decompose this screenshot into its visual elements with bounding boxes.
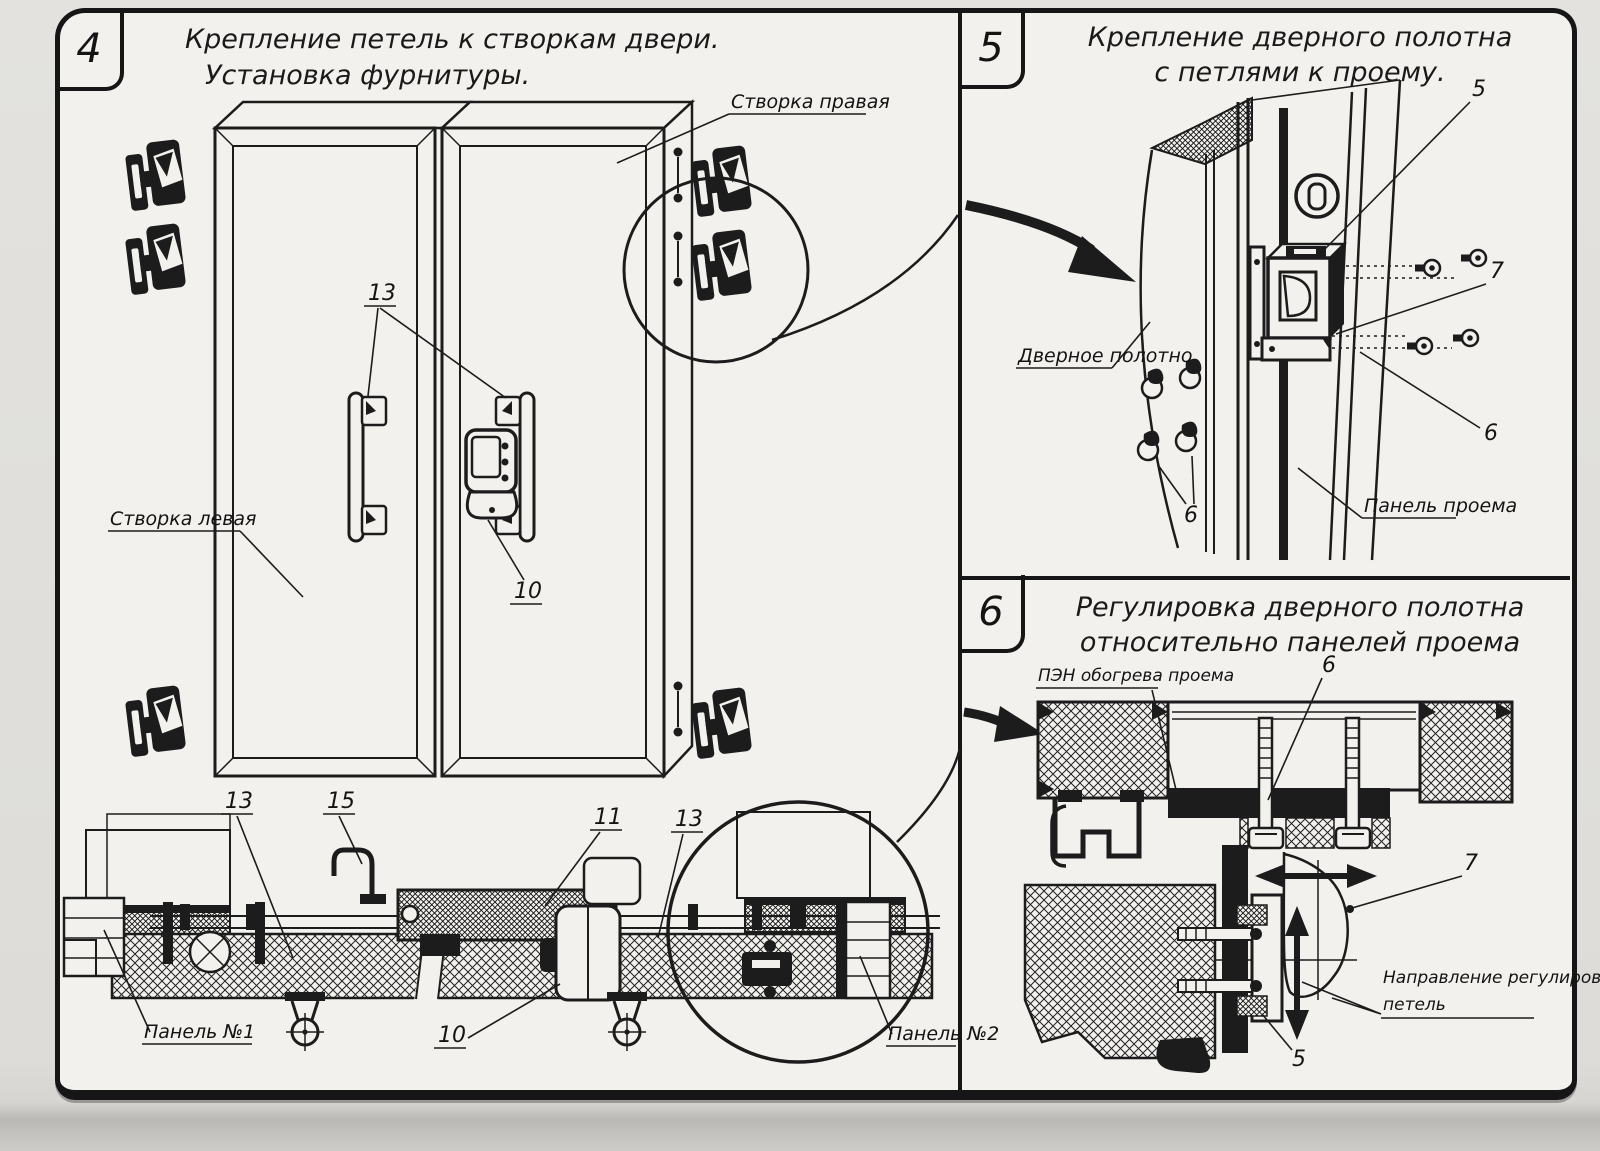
panel6-title-line1: Регулировка дверного полотна	[1040, 592, 1560, 623]
panel6-title-line2: относительно панелей проема	[1040, 627, 1560, 658]
step-number: 5	[978, 25, 1003, 71]
step-number: 4	[76, 26, 101, 72]
panel5-title-line1: Крепление дверного полотна	[1040, 22, 1560, 53]
step-number-box-5: 5	[961, 11, 1025, 89]
step-number-box-4: 4	[58, 11, 124, 91]
scanner-background	[0, 1103, 1600, 1151]
panel4-title-line2: Установка фурнитуры.	[205, 60, 530, 91]
divider-vertical	[958, 12, 962, 1094]
step-number-box-6: 6	[961, 575, 1025, 653]
divider-horizontal	[958, 576, 1570, 580]
step-number: 6	[978, 589, 1003, 635]
sheet-frame	[55, 8, 1577, 1100]
scanned-instruction-sheet: { "panels": { "p4": { "number": "4", "ti…	[0, 0, 1600, 1151]
panel4-title-line1: Крепление петель к створкам двери.	[185, 24, 720, 55]
panel5-title-line2: с петлями к проему.	[1040, 57, 1560, 88]
